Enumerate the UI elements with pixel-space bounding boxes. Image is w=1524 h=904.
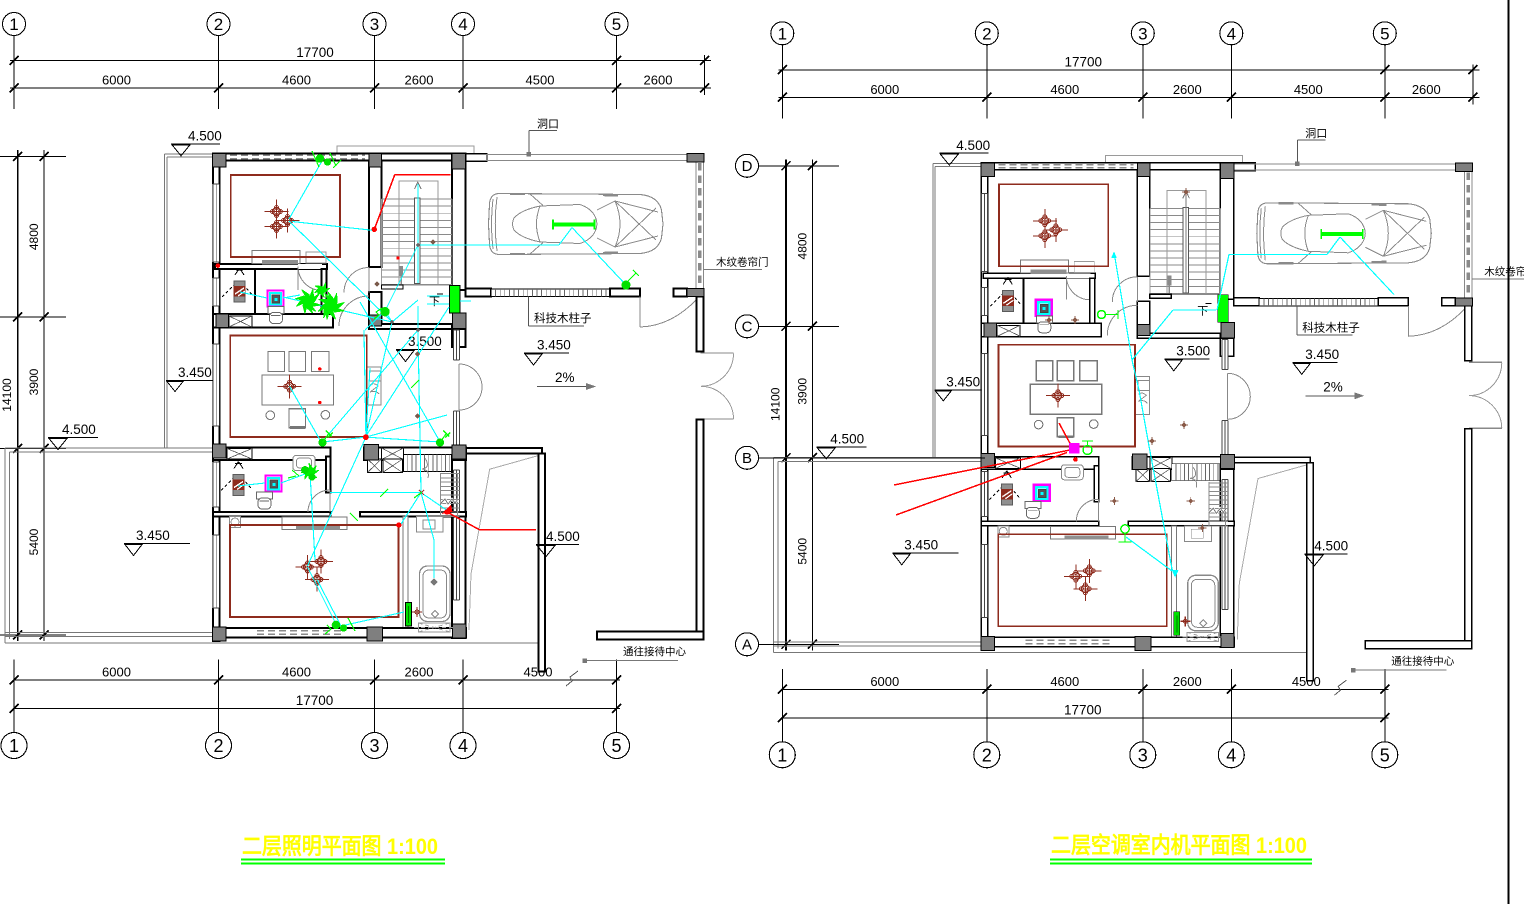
- svg-text:木纹卷帘门: 木纹卷帘门: [716, 256, 769, 269]
- svg-text:3.450: 3.450: [178, 365, 212, 380]
- svg-text:17700: 17700: [1065, 54, 1103, 69]
- svg-text:4600: 4600: [1050, 674, 1079, 689]
- svg-text:17700: 17700: [296, 45, 334, 60]
- svg-text:4.500: 4.500: [546, 529, 580, 544]
- svg-text:3900: 3900: [795, 378, 809, 405]
- svg-text:2600: 2600: [1173, 82, 1202, 97]
- svg-text:4600: 4600: [282, 73, 311, 88]
- svg-text:2600: 2600: [644, 73, 673, 88]
- svg-text:3: 3: [370, 15, 379, 34]
- svg-text:3.450: 3.450: [537, 338, 571, 353]
- svg-text:4800: 4800: [27, 223, 41, 250]
- svg-text:17700: 17700: [296, 693, 334, 708]
- svg-text:4800: 4800: [795, 232, 809, 259]
- svg-text:3: 3: [1138, 24, 1147, 43]
- svg-text:14100: 14100: [768, 387, 782, 421]
- svg-text:2%: 2%: [1323, 379, 1343, 394]
- svg-text:1: 1: [778, 24, 787, 43]
- svg-text:6000: 6000: [102, 73, 131, 88]
- svg-text:A: A: [742, 637, 752, 654]
- svg-text:3.450: 3.450: [136, 528, 170, 543]
- svg-text:科技木柱子: 科技木柱子: [534, 311, 592, 325]
- svg-text:通往接待中心: 通往接待中心: [623, 645, 686, 658]
- svg-text:下: 下: [429, 296, 440, 308]
- svg-text:4.500: 4.500: [1314, 538, 1348, 553]
- svg-text:二层空调室内机平面图 1:100: 二层空调室内机平面图 1:100: [1051, 832, 1307, 858]
- svg-text:6000: 6000: [102, 665, 131, 680]
- svg-text:C: C: [742, 319, 753, 336]
- svg-text:2: 2: [982, 24, 991, 43]
- svg-text:5400: 5400: [795, 538, 809, 565]
- svg-text:4.500: 4.500: [62, 422, 96, 437]
- svg-text:2%: 2%: [555, 370, 575, 385]
- svg-text:2: 2: [213, 736, 223, 756]
- svg-text:2: 2: [214, 15, 223, 34]
- svg-text:洞口: 洞口: [1305, 127, 1327, 140]
- svg-text:1: 1: [9, 15, 18, 34]
- svg-text:2: 2: [982, 745, 992, 765]
- svg-text:14100: 14100: [0, 378, 14, 412]
- svg-text:1: 1: [9, 736, 19, 756]
- svg-text:5: 5: [1380, 745, 1390, 765]
- svg-text:下: 下: [1197, 305, 1208, 317]
- svg-text:3: 3: [369, 736, 379, 756]
- svg-text:2600: 2600: [405, 73, 434, 88]
- svg-text:二层照明平面图 1:100: 二层照明平面图 1:100: [242, 834, 438, 859]
- svg-text:B: B: [742, 450, 752, 467]
- svg-text:3.450: 3.450: [1305, 347, 1339, 362]
- svg-text:4: 4: [1226, 745, 1236, 765]
- svg-text:4.500: 4.500: [956, 138, 990, 153]
- svg-text:5: 5: [611, 736, 621, 756]
- svg-text:D: D: [742, 158, 753, 175]
- svg-text:4.500: 4.500: [830, 431, 864, 446]
- svg-text:3900: 3900: [27, 368, 41, 395]
- svg-text:4500: 4500: [1294, 82, 1323, 97]
- svg-text:4: 4: [458, 15, 467, 34]
- svg-text:洞口: 洞口: [537, 118, 559, 131]
- svg-text:4.500: 4.500: [188, 129, 222, 144]
- svg-text:5400: 5400: [27, 528, 41, 555]
- svg-text:3.450: 3.450: [904, 537, 938, 552]
- svg-text:2600: 2600: [1412, 82, 1441, 97]
- svg-text:2600: 2600: [1173, 674, 1202, 689]
- svg-text:木纹卷帘门: 木纹卷帘门: [1484, 265, 1524, 278]
- svg-text:4500: 4500: [526, 73, 555, 88]
- svg-text:4: 4: [458, 736, 468, 756]
- svg-text:3: 3: [1138, 745, 1148, 765]
- svg-text:4: 4: [1227, 24, 1236, 43]
- svg-text:6000: 6000: [870, 674, 899, 689]
- svg-text:3.500: 3.500: [1176, 343, 1210, 358]
- svg-text:3.450: 3.450: [946, 374, 980, 389]
- svg-text:4600: 4600: [1050, 82, 1079, 97]
- svg-text:科技木柱子: 科技木柱子: [1302, 320, 1360, 334]
- svg-text:4600: 4600: [282, 665, 311, 680]
- svg-text:通往接待中心: 通往接待中心: [1391, 654, 1454, 667]
- svg-text:6000: 6000: [870, 82, 899, 97]
- svg-text:1: 1: [777, 745, 787, 765]
- svg-text:5: 5: [612, 15, 621, 34]
- svg-text:17700: 17700: [1064, 702, 1102, 717]
- svg-text:2600: 2600: [405, 665, 434, 680]
- svg-text:5: 5: [1380, 24, 1389, 43]
